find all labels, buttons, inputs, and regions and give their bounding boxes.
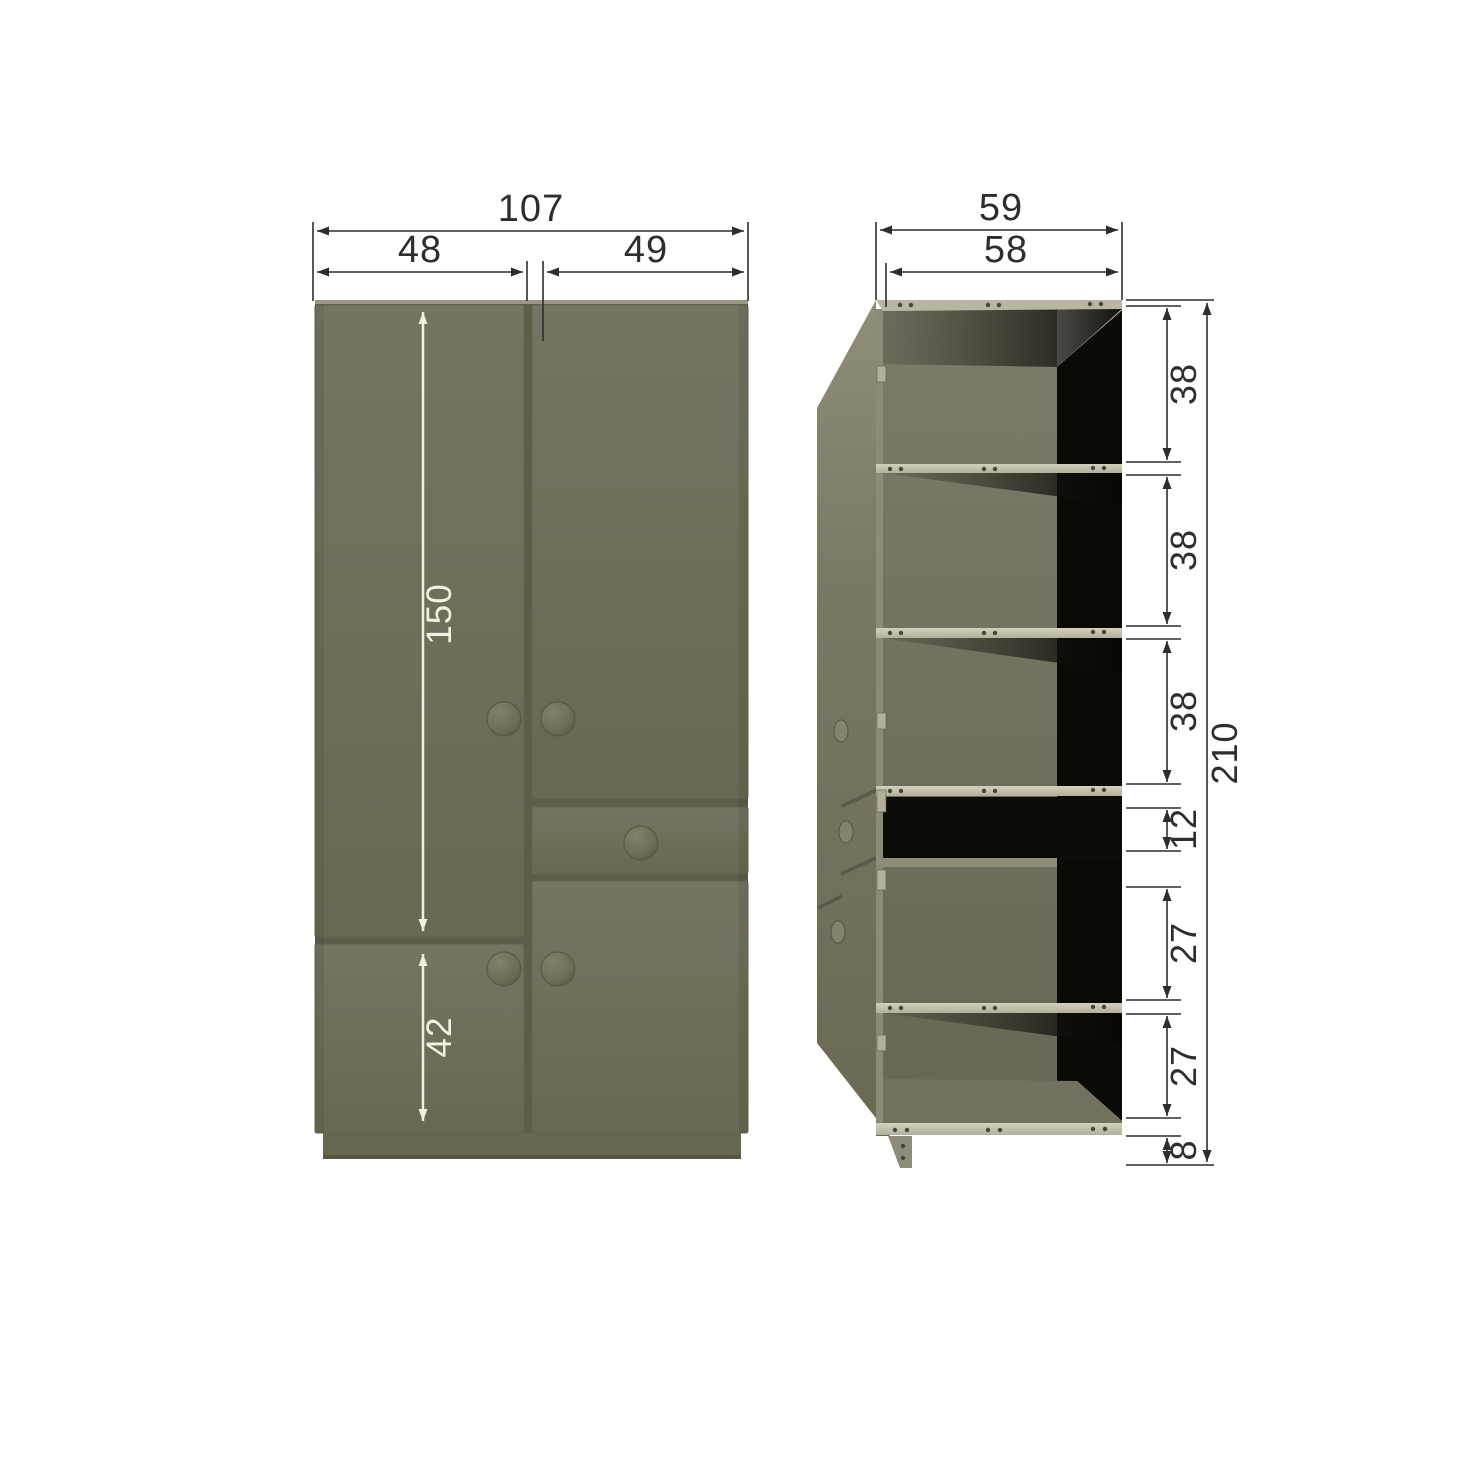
interior-depth-label: 58	[984, 229, 1028, 271]
front-plinth	[323, 1133, 741, 1158]
side-view: 59 58 38 38 38	[817, 187, 1245, 1168]
front-right-bottom-door	[532, 881, 748, 1133]
right-door-width-label: 49	[624, 229, 668, 271]
door-knob	[541, 702, 575, 736]
door-knob	[487, 702, 521, 736]
diagram-svg: 150 42 107 48 49	[0, 0, 1460, 1460]
door-knob	[541, 952, 575, 986]
side-depth-dimensions: 59 58	[880, 187, 1118, 272]
drawer-knob	[624, 826, 658, 860]
section-height-label: 27	[1163, 922, 1204, 964]
side-panel-shadow	[1057, 310, 1122, 1121]
side-knob-profile	[839, 821, 853, 843]
wardrobe-dimension-diagram: 150 42 107 48 49	[0, 0, 1460, 1460]
back-panel	[876, 309, 1057, 1123]
section-height-label: 12	[1163, 808, 1204, 850]
side-knob-profile	[834, 720, 848, 742]
plinth-leg	[888, 1136, 912, 1168]
plinth-screw-dot	[901, 1156, 905, 1160]
shelf-front-edge	[876, 786, 1122, 796]
front-right-shading	[739, 305, 748, 1133]
hinge	[877, 790, 886, 812]
door-knob	[487, 952, 521, 986]
upper-door-height-label: 150	[420, 583, 459, 644]
lower-door-height-label: 42	[420, 1017, 459, 1058]
section-height-label: 38	[1163, 529, 1204, 571]
section-height-label: 8	[1163, 1139, 1204, 1160]
fixed-divider-edge	[876, 858, 1057, 867]
section-height-label: 38	[1163, 690, 1204, 732]
total-width-label: 107	[498, 188, 564, 230]
front-view: 150 42 107 48 49	[313, 188, 748, 1159]
shelf-front-edge	[876, 1003, 1122, 1013]
plinth-screw-dot	[901, 1144, 905, 1148]
hinge	[877, 870, 886, 890]
total-height-label: 210	[1204, 721, 1245, 784]
total-depth-label: 59	[979, 187, 1023, 229]
left-door-width-label: 48	[398, 229, 442, 271]
height-dimension-chain: 38 38 38 12 27 27 8 210	[1163, 303, 1245, 1163]
side-knob-profile	[831, 921, 845, 943]
hinge	[877, 713, 886, 729]
front-width-dimensions: 107 48 49	[317, 188, 744, 272]
section-height-label: 27	[1163, 1045, 1204, 1087]
shelf-front-edge	[876, 464, 1122, 473]
hinge	[877, 366, 886, 382]
hinge	[877, 1035, 886, 1051]
shelf-front-edge	[876, 628, 1122, 638]
front-plinth-shadow	[323, 1155, 741, 1159]
front-top-edge-highlight	[315, 300, 748, 304]
section-height-label: 38	[1163, 363, 1204, 405]
front-left-shading	[315, 305, 324, 1133]
drawer-compartment-shadow	[883, 797, 1122, 860]
